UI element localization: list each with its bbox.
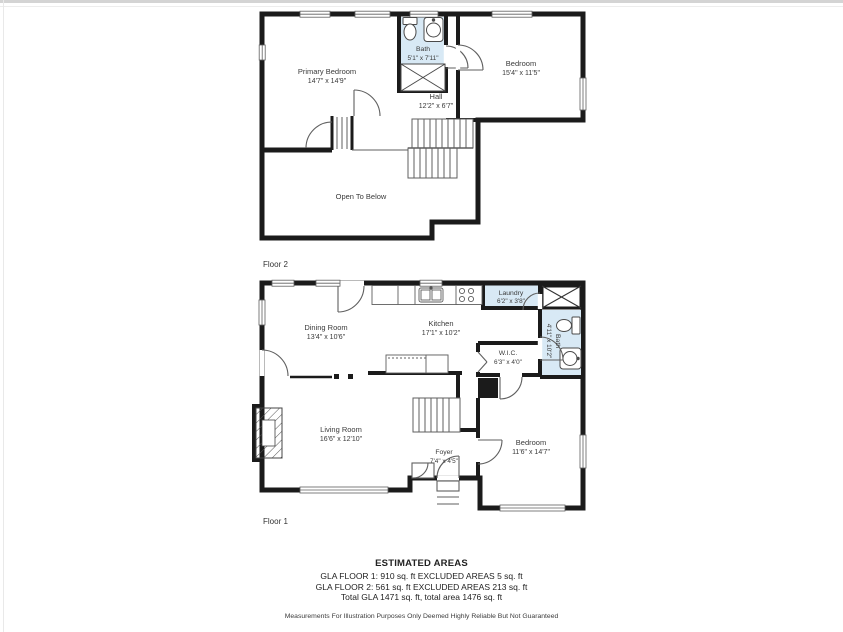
- sink-icon: [424, 18, 443, 42]
- estimated-areas-title: ESTIMATED AREAS: [0, 558, 843, 569]
- floor1-laundry-dims: 6'2" x 3'8": [497, 298, 525, 305]
- gla-floor1-line: GLA FLOOR 1: 910 sq. ft EXCLUDED AREAS 5…: [0, 571, 843, 582]
- floor1-laundry-label: Laundry: [499, 290, 524, 297]
- floor2-bath-label: Bath: [416, 46, 430, 53]
- floor1-foyer-label: Foyer: [435, 449, 453, 456]
- shower-icon: [542, 286, 581, 308]
- fireplace-icon: [254, 406, 282, 460]
- floor2-bedroom-dims: 15'4" x 11'5": [502, 70, 540, 77]
- tub-shower-icon: [401, 64, 445, 91]
- floorplan-page: Primary Bedroom 14'7" x 14'9" Bath 5'1" …: [0, 0, 843, 632]
- porch-steps: [437, 481, 459, 504]
- floor1-bedroom-label: Bedroom: [516, 438, 546, 447]
- floor2-bath-dims: 5'1" x 7'11": [407, 55, 438, 62]
- floor2-primary-bedroom-dims: 14'7" x 14'9": [308, 78, 347, 85]
- gla-total-line: Total GLA 1471 sq. ft, total area 1476 s…: [0, 592, 843, 603]
- floor2-label: Floor 2: [263, 260, 288, 269]
- stove-icon: [456, 286, 482, 305]
- floor1-wic-dims: 6'3" x 4'0": [494, 359, 522, 366]
- floorplan-canvas: Primary Bedroom 14'7" x 14'9" Bath 5'1" …: [0, 0, 843, 632]
- estimated-areas-block: ESTIMATED AREAS GLA FLOOR 1: 910 sq. ft …: [0, 558, 843, 603]
- kitchen-sink-icon: [419, 287, 443, 302]
- floor1-kitchen-label: Kitchen: [428, 319, 453, 328]
- foyer-closet: [412, 463, 434, 478]
- toilet-icon: [403, 18, 417, 41]
- floor2-plan: Primary Bedroom 14'7" x 14'9" Bath 5'1" …: [259, 11, 586, 269]
- floor1-dining-room-dims: 13'4" x 10'6": [307, 334, 346, 341]
- chimney-block: [478, 378, 498, 398]
- floor1-living-room-label: Living Room: [320, 425, 362, 434]
- measurement-disclaimer: Measurements For Illustration Purposes O…: [0, 613, 843, 620]
- floor2-primary-bedroom-label: Primary Bedroom: [298, 67, 356, 76]
- floor1-living-room-dims: 16'6" x 12'10": [320, 436, 363, 443]
- floor1-dining-room-label: Dining Room: [304, 323, 347, 332]
- floor2-hall-dims: 12'2" x 6'7": [419, 103, 454, 110]
- floor1-foyer-dims: 7'4" x 4'5": [430, 458, 458, 465]
- floor1-laundry-area: [483, 286, 540, 309]
- floor1-stairs: [413, 398, 460, 432]
- kitchen-peninsula: [386, 355, 448, 373]
- floor1-label: Floor 1: [263, 517, 288, 526]
- floor1-bedroom-dims: 11'6" x 14'7": [512, 449, 550, 456]
- floor1-plan: Dining Room 13'4" x 10'6" Kitchen 17'1" …: [254, 280, 586, 526]
- floor1-bath-label: Bath: [554, 334, 561, 348]
- floor1-bath-dims: 4'11" x 10'2": [545, 324, 552, 359]
- floor2-bedroom-label: Bedroom: [506, 59, 536, 68]
- floor2-hall-label: Hall: [430, 92, 443, 101]
- floor1-wic-label: W.I.C.: [499, 350, 518, 357]
- floor2-open-to-below-label: Open To Below: [336, 192, 387, 201]
- gla-floor2-line: GLA FLOOR 2: 561 sq. ft EXCLUDED AREAS 2…: [0, 582, 843, 593]
- floor1-kitchen-dims: 17'1" x 10'2": [422, 330, 461, 337]
